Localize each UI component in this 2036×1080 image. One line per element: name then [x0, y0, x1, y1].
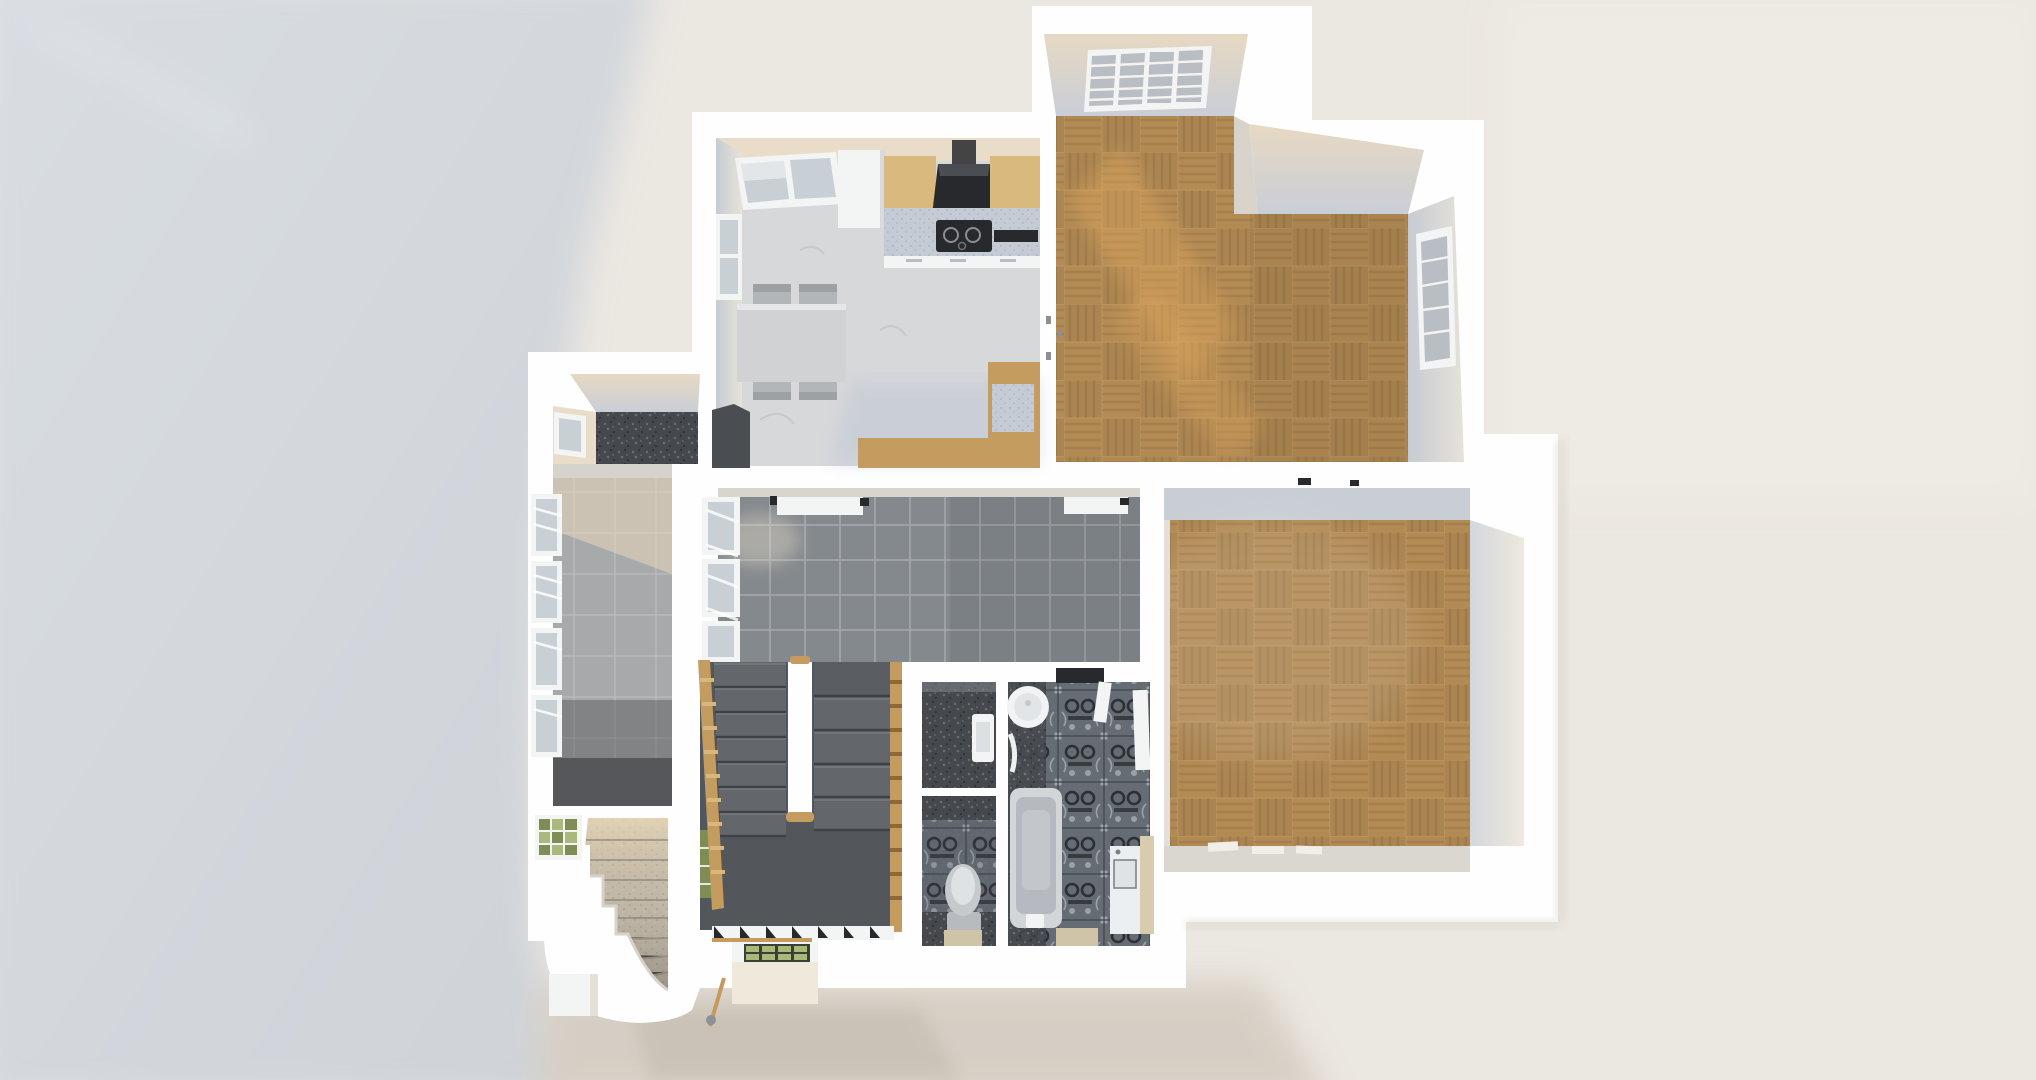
- glass-block-window: [535, 815, 582, 860]
- living-ambient-shade: [1250, 214, 1408, 462]
- kitchen-bench: [712, 404, 750, 468]
- peninsula-worktop: [992, 384, 1034, 432]
- exterior-stairs: [535, 815, 668, 1018]
- skylight-box: [732, 942, 818, 1004]
- counter-wood-right: [990, 156, 1040, 214]
- divider-wood-cap: [790, 656, 810, 664]
- stair-flight-left: [714, 662, 786, 836]
- bedroom-left-wall-face: [1164, 520, 1170, 846]
- bath-door-against-wall: [1133, 690, 1151, 770]
- chair-back: [753, 284, 791, 292]
- hall-top-wall-face: [718, 488, 1140, 498]
- room-side: [531, 462, 672, 806]
- kitchen-left-window: [716, 214, 742, 300]
- drawer-handle: [1000, 259, 1016, 262]
- chair-back: [799, 284, 837, 292]
- side-top-wall-face: [553, 462, 672, 478]
- exterior-wall-box: [549, 974, 598, 1016]
- side-shade: [553, 700, 672, 760]
- induction-hob: [936, 220, 992, 252]
- storage-floor: [596, 412, 698, 464]
- living-top-window: [1084, 46, 1212, 112]
- bath-threshold-mat: [1056, 928, 1098, 946]
- hall-left-windows: [702, 497, 740, 662]
- stair-rail-right: [890, 662, 902, 932]
- living-right-window: [1416, 226, 1456, 370]
- room-hallway: [702, 488, 1140, 662]
- bath-cabinet: [1140, 836, 1154, 934]
- hall-shade: [950, 497, 1140, 662]
- dining-table: [737, 304, 846, 382]
- door-hinge: [1350, 480, 1359, 486]
- room-kitchen: [712, 138, 1051, 468]
- door-hinge: [1298, 478, 1311, 485]
- bedroom-right-wall-face: [1470, 520, 1524, 846]
- wc-threshold-mat: [944, 930, 982, 946]
- floorplan-render: 3D rendered floor plan — top-down view: [0, 0, 2036, 1080]
- kitchen-top-window: [735, 152, 843, 210]
- door-hinge: [1046, 316, 1051, 324]
- peninsula-wood-bottom: [858, 438, 1040, 468]
- bathtub: [1010, 788, 1062, 928]
- hall-door-left: [770, 496, 869, 515]
- stair-flight-right: [814, 662, 896, 830]
- round-washbasin: [1007, 686, 1049, 728]
- stair-divider-wall: [788, 662, 812, 818]
- cast-shadow-steps: [630, 1008, 960, 1080]
- fridge: [838, 150, 884, 228]
- storage-window: [554, 412, 586, 458]
- table-highlight: [737, 304, 846, 310]
- washing-machine: [1110, 846, 1140, 934]
- background-glow: [1500, 0, 2036, 500]
- drawer-handle: [906, 259, 922, 262]
- room-bedroom: [1120, 478, 1524, 872]
- utility-wall-shade: [922, 682, 996, 692]
- drawer-handle: [950, 259, 966, 262]
- bedroom-top-wall-face: [1164, 488, 1470, 520]
- bathroom-wing: [922, 668, 1154, 946]
- chair-back: [799, 392, 837, 400]
- door-hinge: [1046, 352, 1051, 360]
- tub-faucet: [1026, 914, 1044, 928]
- toilet: [944, 864, 982, 946]
- black-tray: [994, 230, 1038, 242]
- basement-stair-edge: [712, 926, 894, 942]
- bathroom-door-opening: [1056, 668, 1104, 683]
- counter-wood-left: [884, 156, 936, 214]
- divider-wood-cap: [786, 812, 814, 822]
- door-hinge: [1058, 330, 1062, 337]
- chair-back: [753, 392, 791, 400]
- wall-basin: [972, 714, 994, 762]
- side-dark-band: [553, 758, 672, 806]
- hall-door-right: [1064, 497, 1129, 514]
